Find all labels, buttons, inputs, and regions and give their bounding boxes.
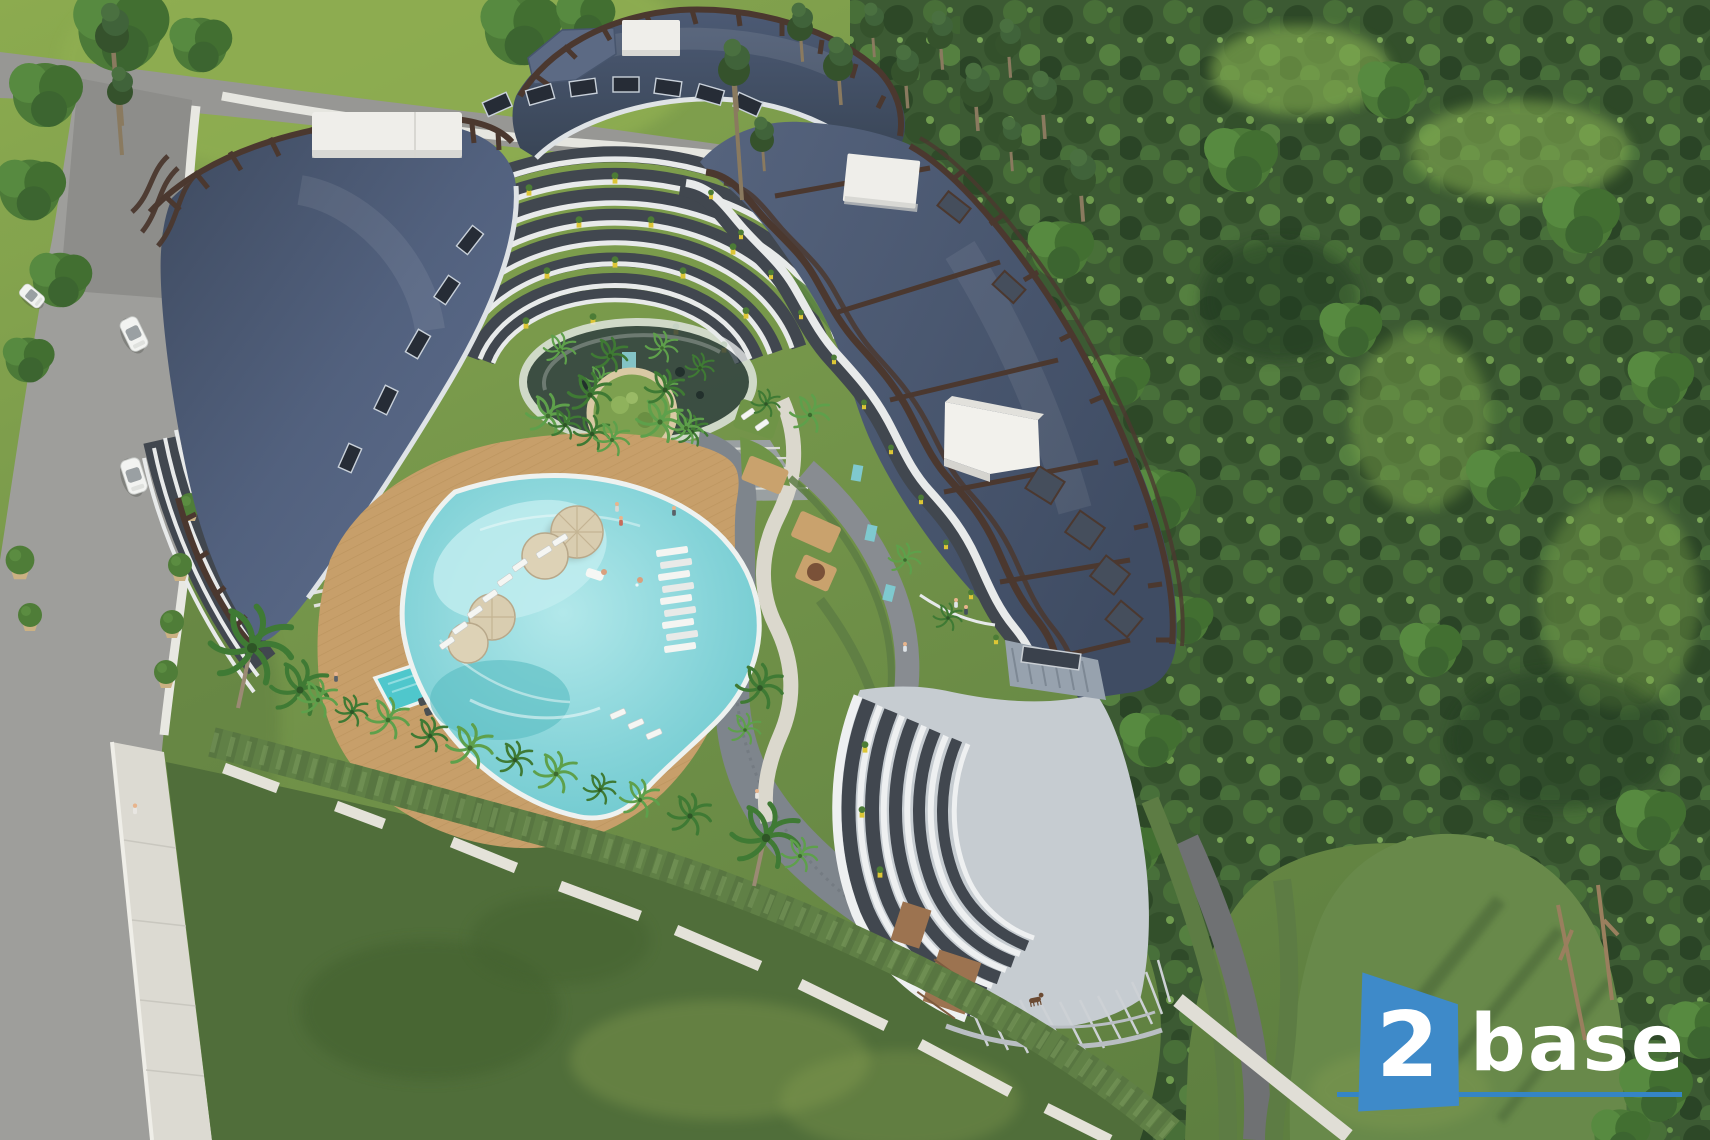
rooftop-unit-upper-right [843, 153, 921, 212]
watermark-logo: 2 base [1325, 955, 1705, 1140]
rooftop-unit-left [312, 112, 462, 158]
logo-wordmark: base [1470, 1005, 1686, 1083]
logo-badge: 2 [1355, 968, 1460, 1113]
render-canvas: .fr{fill:none;stroke:#3f7a34;stroke-widt… [0, 0, 1710, 1140]
rooftop-unit-top [622, 20, 680, 56]
logo-number: 2 [1376, 1001, 1439, 1091]
